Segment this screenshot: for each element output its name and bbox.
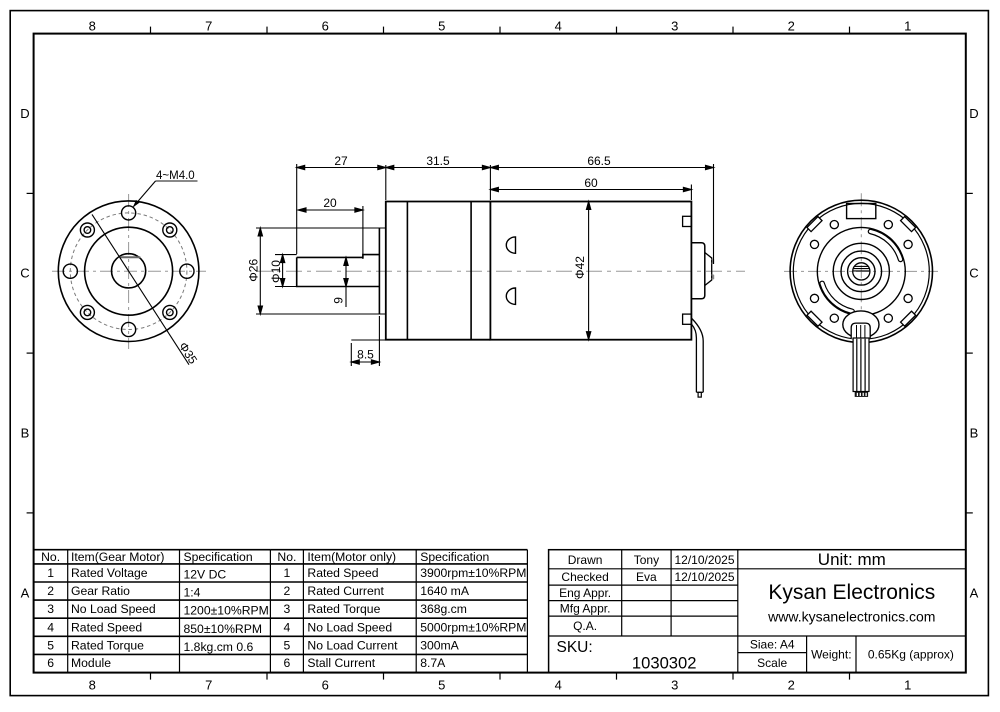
svg-text:12/10/2025: 12/10/2025 [674,553,734,567]
svg-text:368g.cm: 368g.cm [420,602,467,616]
svg-text:Φ10: Φ10 [269,260,283,283]
svg-text:Checked: Checked [561,570,608,584]
svg-text:No.: No. [41,550,60,564]
svg-text:6: 6 [47,656,54,670]
svg-text:8.5: 8.5 [357,348,374,362]
svg-text:Rated Torque: Rated Torque [71,638,144,652]
svg-text:3: 3 [671,19,678,34]
svg-text:Item(Motor only): Item(Motor only) [307,550,396,564]
svg-text:6: 6 [322,678,329,693]
svg-text:1: 1 [904,19,911,34]
svg-text:C: C [20,266,29,281]
svg-text:1200±10%RPM: 1200±10%RPM [184,604,269,618]
svg-text:20: 20 [323,196,337,210]
svg-text:Weight:: Weight: [811,648,851,662]
svg-text:2: 2 [284,584,291,598]
svg-text:9: 9 [331,297,345,304]
svg-text:No Load Current: No Load Current [307,638,398,652]
svg-text:Q.A.: Q.A. [573,619,597,633]
svg-text:Tony: Tony [634,553,659,567]
svg-text:Eva: Eva [636,570,657,584]
svg-text:Rated Torque: Rated Torque [307,602,380,616]
svg-text:1:4: 1:4 [184,586,201,600]
svg-text:12V DC: 12V DC [184,568,227,582]
svg-text:Kysan Electronics: Kysan Electronics [768,581,935,604]
svg-text:Siae: A4: Siae: A4 [750,638,795,652]
svg-text:B: B [970,426,979,441]
svg-text:Rated Voltage: Rated Voltage [71,566,148,580]
svg-text:1640 mA: 1640 mA [420,584,470,598]
svg-text:Φ42: Φ42 [573,256,587,279]
svg-text:A: A [21,585,30,600]
svg-text:1030302: 1030302 [632,654,697,673]
svg-text:Eng Appr.: Eng Appr. [559,586,611,600]
svg-text:8.7A: 8.7A [420,656,446,670]
svg-text:3900rpm±10%RPM: 3900rpm±10%RPM [420,566,526,580]
svg-text:300mA: 300mA [420,638,459,652]
svg-text:No Load Speed: No Load Speed [307,620,392,634]
svg-text:Stall Current: Stall Current [307,656,375,670]
svg-text:3: 3 [284,602,291,616]
svg-text:4: 4 [47,620,54,634]
svg-text:B: B [21,426,30,441]
svg-text:4~M4.0: 4~M4.0 [156,170,195,182]
svg-text:Gear Ratio: Gear Ratio [71,584,130,598]
svg-text:12/10/2025: 12/10/2025 [674,570,734,584]
svg-text:8: 8 [89,19,96,34]
svg-text:2: 2 [788,678,795,693]
svg-text:Mfg Appr.: Mfg Appr. [560,601,611,615]
svg-text:Φ26: Φ26 [246,259,260,282]
svg-text:5: 5 [438,678,445,693]
svg-text:5: 5 [47,638,54,652]
svg-text:Rated Speed: Rated Speed [71,620,142,634]
svg-text:Rated Speed: Rated Speed [307,566,378,580]
svg-text:3: 3 [47,602,54,616]
svg-text:6: 6 [284,656,291,670]
svg-text:4: 4 [555,19,562,34]
svg-text:D: D [969,106,978,121]
svg-text:0.65Kg (approx): 0.65Kg (approx) [868,648,954,662]
svg-text:1.8kg.cm 0.6: 1.8kg.cm 0.6 [184,640,254,654]
svg-text:Drawn: Drawn [568,553,603,567]
svg-text:5: 5 [284,638,291,652]
svg-text:2: 2 [47,584,54,598]
svg-text:Item(Gear Motor): Item(Gear Motor) [71,550,164,564]
svg-text:A: A [970,585,979,600]
svg-text:4: 4 [555,678,562,693]
svg-text:7: 7 [205,19,212,34]
svg-text:5000rpm±10%RPM: 5000rpm±10%RPM [420,620,526,634]
svg-text:66.5: 66.5 [587,154,611,168]
svg-text:Unit: mm: Unit: mm [818,550,886,569]
svg-text:Rated Current: Rated Current [307,584,384,598]
svg-text:www.kysanelectronics.com: www.kysanelectronics.com [767,609,935,625]
svg-text:2: 2 [788,19,795,34]
svg-text:Scale: Scale [757,656,787,670]
svg-text:27: 27 [334,154,348,168]
svg-text:6: 6 [322,19,329,34]
svg-text:1: 1 [904,678,911,693]
svg-text:D: D [20,106,29,121]
svg-text:SKU:: SKU: [557,639,593,656]
svg-text:Specification: Specification [420,550,489,564]
svg-text:850±10%RPM: 850±10%RPM [184,622,263,636]
svg-text:No Load Speed: No Load Speed [71,602,156,616]
svg-text:60: 60 [584,176,598,190]
svg-text:31.5: 31.5 [426,154,450,168]
svg-text:7: 7 [205,678,212,693]
svg-text:5: 5 [438,19,445,34]
svg-text:1: 1 [284,566,291,580]
svg-text:Module: Module [71,656,111,670]
svg-text:C: C [969,266,978,281]
svg-text:1: 1 [47,566,54,580]
svg-text:3: 3 [671,678,678,693]
svg-text:8: 8 [89,678,96,693]
svg-text:4: 4 [284,620,291,634]
svg-text:No.: No. [277,550,296,564]
svg-text:Specification: Specification [184,550,253,564]
